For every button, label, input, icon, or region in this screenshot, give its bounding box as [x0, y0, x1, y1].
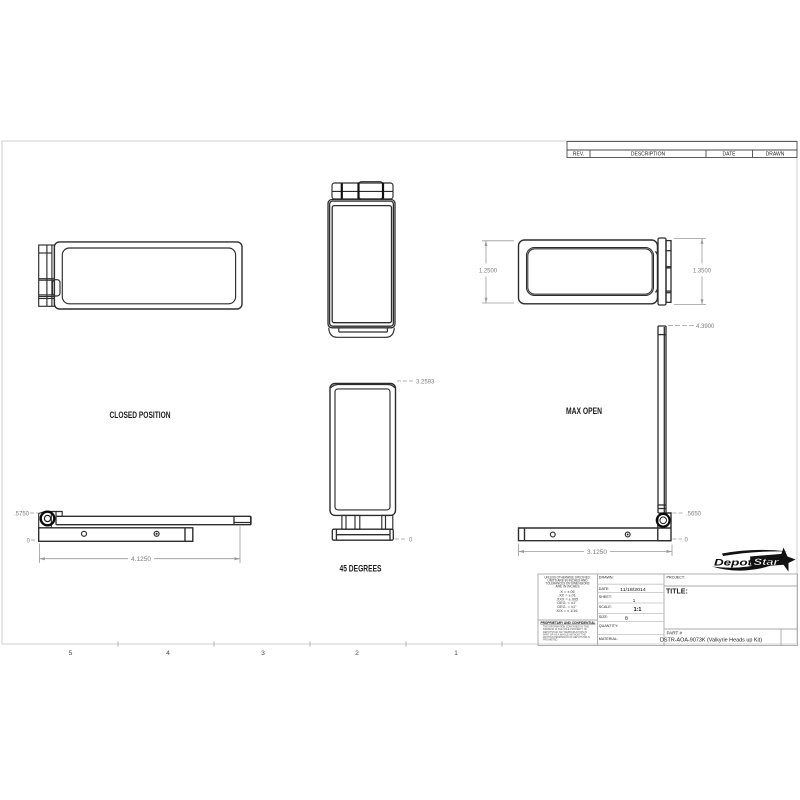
svg-text:MATERIAL:: MATERIAL:	[599, 637, 618, 641]
svg-text:DRAWN:: DRAWN:	[599, 576, 614, 580]
svg-text:45 DEGREES: 45 DEGREES	[340, 564, 382, 574]
svg-text:B: B	[625, 615, 628, 620]
svg-text:3.1250: 3.1250	[587, 550, 608, 556]
svg-text:4: 4	[166, 650, 170, 657]
svg-text:4.1250: 4.1250	[131, 557, 152, 563]
svg-text:PROHIBITED.: PROHIBITED.	[543, 638, 558, 642]
svg-text:5: 5	[69, 650, 73, 657]
svg-text:PART #: PART #	[667, 631, 683, 636]
svg-text:DSTR-AOA-9073K (Valkyrie Heads: DSTR-AOA-9073K (Valkyrie Heads up Kit)	[660, 638, 762, 644]
svg-text:.5650: .5650	[686, 511, 702, 517]
svg-text:.5750: .5750	[14, 511, 30, 517]
svg-text:4.3900: 4.3900	[696, 324, 715, 330]
svg-text:3.2593: 3.2593	[416, 379, 435, 385]
svg-text:SIZE:: SIZE:	[599, 615, 608, 619]
svg-text:2: 2	[355, 650, 359, 657]
svg-text:CLOSED POSITION: CLOSED POSITION	[110, 410, 171, 420]
svg-text:MAX OPEN: MAX OPEN	[566, 406, 602, 416]
svg-text:TITLE:: TITLE:	[666, 588, 688, 595]
svg-text:1.3500: 1.3500	[693, 269, 712, 275]
svg-text:X/X = ± 1/16: X/X = ± 1/16	[557, 609, 578, 613]
svg-text:11/18/2014: 11/18/2014	[620, 587, 646, 592]
svg-text:3: 3	[261, 650, 265, 657]
svg-text:REV.: REV.	[573, 152, 584, 158]
svg-text:1:1: 1:1	[634, 607, 642, 613]
svg-text:QUANTITY:: QUANTITY:	[599, 624, 618, 628]
svg-text:SCALE:: SCALE:	[599, 605, 612, 609]
svg-text:ARE IN INCHES: ARE IN INCHES	[556, 584, 581, 588]
svg-text:DESCRIPTION: DESCRIPTION	[631, 152, 666, 158]
svg-text:PROPRIETARY AND CONFIDENTIAL: PROPRIETARY AND CONFIDENTIAL	[541, 621, 596, 625]
svg-text:SHEET:: SHEET:	[599, 595, 612, 599]
svg-text:Depot: Depot	[714, 558, 753, 569]
svg-text:1.2500: 1.2500	[479, 269, 498, 275]
svg-text:DATE: DATE	[723, 152, 737, 158]
svg-text:1: 1	[454, 650, 458, 657]
svg-text:DRAWN: DRAWN	[766, 152, 785, 158]
svg-text:DATE:: DATE:	[599, 587, 610, 591]
svg-text:1: 1	[633, 598, 636, 603]
svg-text:PROJECT:: PROJECT:	[667, 575, 685, 579]
svg-text:Star: Star	[754, 557, 780, 567]
